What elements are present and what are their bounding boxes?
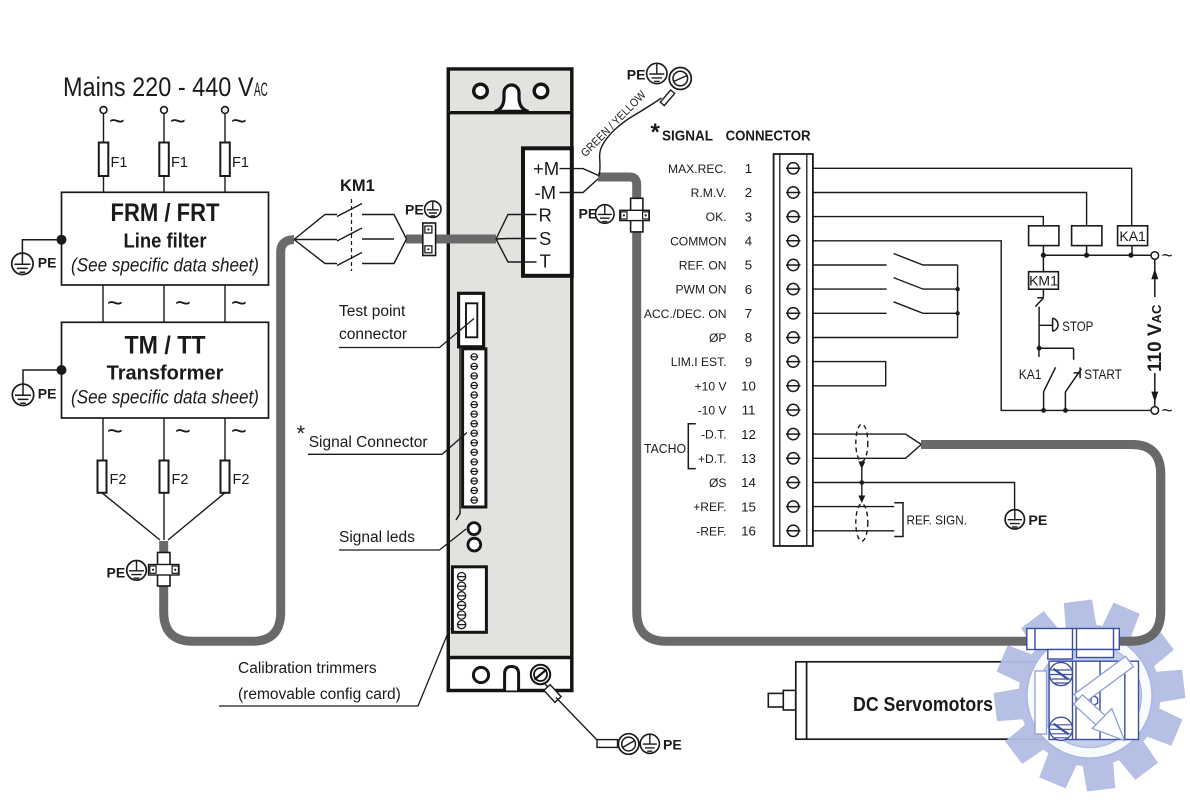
svg-text:1: 1 <box>745 161 752 176</box>
svg-text:F2: F2 <box>233 472 250 488</box>
svg-text:*: * <box>297 421 306 446</box>
svg-text:PE: PE <box>663 737 682 753</box>
svg-text:PE: PE <box>405 202 424 218</box>
svg-text:3: 3 <box>745 209 752 224</box>
svg-text:(removable config card): (removable config card) <box>238 686 401 703</box>
svg-text:STOP: STOP <box>1062 319 1093 334</box>
svg-text:Calibration trimmers: Calibration trimmers <box>238 660 377 677</box>
svg-text:~: ~ <box>175 288 191 318</box>
svg-text:15: 15 <box>741 499 756 514</box>
svg-text:+D.T.: +D.T. <box>698 452 727 466</box>
svg-text:2: 2 <box>745 185 752 200</box>
svg-text:~: ~ <box>231 416 247 446</box>
svg-text:ACC./DEC. ON: ACC./DEC. ON <box>644 307 727 321</box>
svg-text:DC Servomotors: DC Servomotors <box>853 693 993 716</box>
svg-text:-10 V: -10 V <box>698 404 728 418</box>
svg-text:-M: -M <box>535 182 557 203</box>
svg-text:TM / TT: TM / TT <box>125 332 206 360</box>
svg-text:AC: AC <box>254 80 268 101</box>
svg-text:~: ~ <box>231 106 247 136</box>
svg-text:F1: F1 <box>171 155 188 171</box>
svg-text:R: R <box>539 205 552 226</box>
svg-text:SIGNAL: SIGNAL <box>662 128 713 145</box>
svg-text:ØS: ØS <box>709 476 726 490</box>
svg-text:9: 9 <box>745 354 752 369</box>
svg-text:Signal Connector: Signal Connector <box>309 434 428 451</box>
svg-text:~: ~ <box>175 416 191 446</box>
svg-text:~: ~ <box>1162 401 1173 422</box>
svg-text:ØP: ØP <box>709 331 726 345</box>
svg-text:12: 12 <box>741 427 756 442</box>
svg-text:F2: F2 <box>172 472 189 488</box>
svg-text:~: ~ <box>231 288 247 318</box>
svg-text:S: S <box>539 228 551 249</box>
svg-text:PE: PE <box>1028 513 1047 529</box>
svg-text:10: 10 <box>741 379 756 394</box>
svg-text:Signal leds: Signal leds <box>339 529 415 546</box>
svg-text:16: 16 <box>741 524 756 539</box>
svg-text:KM1: KM1 <box>1029 272 1058 288</box>
svg-text:8: 8 <box>745 330 752 345</box>
svg-text:14: 14 <box>741 475 756 490</box>
svg-text:CONNECTOR: CONNECTOR <box>726 128 811 145</box>
svg-text:*: * <box>651 119 661 146</box>
svg-text:+REF.: +REF. <box>693 500 726 514</box>
svg-text:COMMON: COMMON <box>670 234 726 248</box>
svg-text:Transformer: Transformer <box>107 363 224 385</box>
svg-text:MAX.REC.: MAX.REC. <box>668 162 726 176</box>
svg-text:REF. ON: REF. ON <box>679 259 727 273</box>
svg-text:~: ~ <box>170 106 186 136</box>
svg-text:7: 7 <box>745 306 752 321</box>
svg-text:PE: PE <box>107 565 126 581</box>
svg-text:110 VAC: 110 VAC <box>1145 304 1166 372</box>
svg-text:OK.: OK. <box>706 210 727 224</box>
svg-text:(See specific data sheet): (See specific data sheet) <box>71 256 259 277</box>
svg-text:(See specific data sheet): (See specific data sheet) <box>71 388 259 409</box>
svg-text:~: ~ <box>107 416 123 446</box>
svg-text:-REF.: -REF. <box>696 524 726 538</box>
svg-text:PE: PE <box>38 254 57 270</box>
svg-text:5: 5 <box>745 258 752 273</box>
svg-text:REF. SIGN.: REF. SIGN. <box>907 513 968 528</box>
svg-text:KM1: KM1 <box>340 177 375 195</box>
svg-text:F1: F1 <box>232 155 249 171</box>
svg-text:Test point: Test point <box>339 303 406 320</box>
svg-text:KA1: KA1 <box>1119 228 1146 244</box>
svg-text:13: 13 <box>741 451 756 466</box>
svg-text:+M: +M <box>533 158 559 179</box>
svg-text:R.M.V.: R.M.V. <box>691 186 727 200</box>
svg-text:~: ~ <box>1162 246 1173 267</box>
svg-text:Line filter: Line filter <box>124 231 207 253</box>
svg-text:6: 6 <box>745 282 752 297</box>
svg-text:PE: PE <box>627 67 646 83</box>
svg-text:+10 V: +10 V <box>695 379 728 393</box>
svg-text:PWM ON: PWM ON <box>675 283 726 297</box>
svg-text:KA1: KA1 <box>1019 367 1042 382</box>
svg-text:-D.T.: -D.T. <box>701 428 727 442</box>
svg-text:Mains 220 - 440 V: Mains 220 - 440 V <box>63 72 254 102</box>
svg-text:LIM.I EST.: LIM.I EST. <box>671 355 727 369</box>
svg-text:F1: F1 <box>111 155 128 171</box>
svg-text:connector: connector <box>339 326 407 343</box>
svg-text:PE: PE <box>579 206 598 222</box>
svg-text:11: 11 <box>742 403 756 418</box>
svg-text:~: ~ <box>109 106 125 136</box>
svg-text:PE: PE <box>38 385 57 401</box>
svg-text:T: T <box>540 251 551 272</box>
svg-text:4: 4 <box>745 234 752 249</box>
svg-text:FRM / FRT: FRM / FRT <box>111 199 220 227</box>
svg-text:TACHO: TACHO <box>644 441 686 456</box>
svg-text:START: START <box>1084 367 1122 382</box>
svg-text:~: ~ <box>107 288 123 318</box>
svg-text:F2: F2 <box>110 472 127 488</box>
